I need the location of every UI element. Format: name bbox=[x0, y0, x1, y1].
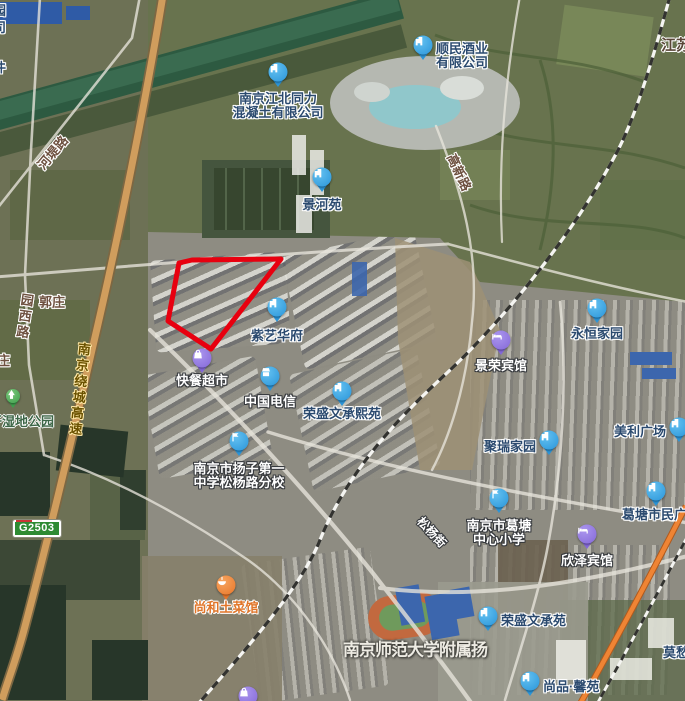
map-label: 南京师范大学附属扬 bbox=[343, 636, 487, 661]
poi-marker-wetland-park[interactable] bbox=[6, 389, 20, 403]
poi-marker-rongsheng-wenchengyuan[interactable] bbox=[479, 607, 498, 626]
shop-icon bbox=[261, 367, 272, 378]
building-icon bbox=[269, 63, 280, 74]
poi-marker-tongli-concrete[interactable] bbox=[269, 63, 288, 82]
building-icon bbox=[588, 299, 599, 310]
poi-marker-shanghe-restaurant[interactable] bbox=[217, 576, 236, 595]
poi-label-ziyi-huafu[interactable]: 紫艺华府 bbox=[251, 329, 303, 343]
food-icon bbox=[217, 576, 228, 587]
flag-icon bbox=[490, 489, 501, 500]
poi-marker-yongheng-jiayuan[interactable] bbox=[588, 299, 607, 318]
bed-icon bbox=[578, 525, 589, 536]
map-label: 开湿地公园 bbox=[0, 411, 54, 430]
map-canvas bbox=[0, 0, 685, 701]
map-label: 江苏 bbox=[661, 34, 685, 55]
poi-label-shanghe-restaurant[interactable]: 尚和土菜馆 bbox=[193, 601, 258, 615]
poi-label-shangpin-xinyuan[interactable]: 尚品·馨苑 bbox=[543, 680, 599, 694]
poi-label-jingheyuan[interactable]: 景河苑 bbox=[302, 198, 341, 212]
map-label: 司 bbox=[0, 17, 6, 36]
poi-marker-meili-plaza[interactable] bbox=[670, 418, 685, 437]
poi-marker-jingrong-hotel[interactable] bbox=[492, 331, 511, 350]
poi-label-china-telecom[interactable]: 中国电信 bbox=[244, 395, 296, 409]
building-icon bbox=[333, 382, 344, 393]
poi-marker-xinze-hotel[interactable] bbox=[578, 525, 597, 544]
map-label: 郭庄 bbox=[39, 292, 65, 311]
building-icon bbox=[479, 607, 490, 618]
poi-label-rongsheng-wenchengxiyuan[interactable]: 荣盛文承熙苑 bbox=[303, 407, 381, 421]
poi-marker-shunmin-liquor[interactable] bbox=[414, 36, 433, 55]
poi-marker-china-telecom[interactable] bbox=[261, 367, 280, 386]
poi-marker-yangzi-no1-school[interactable] bbox=[230, 432, 249, 451]
poi-marker-rongsheng-wenchengxiyuan[interactable] bbox=[333, 382, 352, 401]
building-icon bbox=[268, 298, 279, 309]
poi-label-jurui-jiayuan[interactable]: 聚瑞家园 bbox=[484, 440, 536, 454]
building-icon bbox=[540, 431, 551, 442]
poi-marker-kuaican-supermarket[interactable] bbox=[193, 349, 212, 368]
building-icon bbox=[647, 482, 658, 493]
flag-icon bbox=[230, 432, 241, 443]
poi-label-jingrong-hotel[interactable]: 景荣宾馆 bbox=[475, 359, 527, 373]
poi-label-kuaican-supermarket[interactable]: 快餐超市 bbox=[176, 374, 228, 388]
map-label: 庄 bbox=[0, 350, 10, 369]
poi-label-tongli-concrete[interactable]: 南京江北同力混凝土有限公司 bbox=[232, 92, 323, 120]
poi-marker-shangpin-xinyuan[interactable] bbox=[521, 672, 540, 691]
satellite-map[interactable]: G2503 顺民酒业有限公司南京江北同力混凝土有限公司景河苑紫艺华府快餐超市中国… bbox=[0, 0, 685, 701]
map-label: 莫愁 bbox=[663, 642, 685, 661]
road-badge-g2503: G2503 bbox=[13, 520, 61, 537]
poi-label-yongheng-jiayuan[interactable]: 永恒家园 bbox=[571, 327, 623, 341]
poi-label-rongsheng-wenchengyuan[interactable]: 荣盛文承苑 bbox=[501, 614, 566, 628]
poi-label-getang-primary-school[interactable]: 南京市葛塘中心小学 bbox=[466, 519, 531, 547]
poi-label-yangzi-no1-school[interactable]: 南京市扬子第一中学松杨路分校 bbox=[193, 462, 284, 490]
tree-icon bbox=[6, 389, 17, 400]
map-label: 件 bbox=[0, 57, 6, 76]
bag-icon bbox=[193, 349, 204, 360]
building-icon bbox=[414, 36, 425, 47]
poi-label-shunmin-liquor[interactable]: 顺民酒业有限公司 bbox=[436, 42, 488, 70]
poi-label-xinze-hotel[interactable]: 欣泽宾馆 bbox=[561, 554, 613, 568]
bed-icon bbox=[492, 331, 503, 342]
bag-icon bbox=[239, 687, 250, 698]
poi-label-meili-plaza[interactable]: 美利广场 bbox=[614, 425, 666, 439]
building-icon bbox=[521, 672, 532, 683]
building-icon bbox=[313, 168, 324, 179]
poi-marker-ziyi-huafu[interactable] bbox=[268, 298, 287, 317]
poi-marker-getang-primary-school[interactable] bbox=[490, 489, 509, 508]
poi-marker-getang-civic-plaza[interactable] bbox=[647, 482, 666, 501]
building-icon bbox=[670, 418, 681, 429]
concrete-plant bbox=[330, 56, 520, 150]
poi-marker-jurui-jiayuan[interactable] bbox=[540, 431, 559, 450]
poi-marker-south-shopping[interactable] bbox=[239, 687, 258, 701]
poi-label-getang-civic-plaza[interactable]: 葛塘市民广场 bbox=[622, 508, 685, 522]
poi-marker-jingheyuan[interactable] bbox=[313, 168, 332, 187]
